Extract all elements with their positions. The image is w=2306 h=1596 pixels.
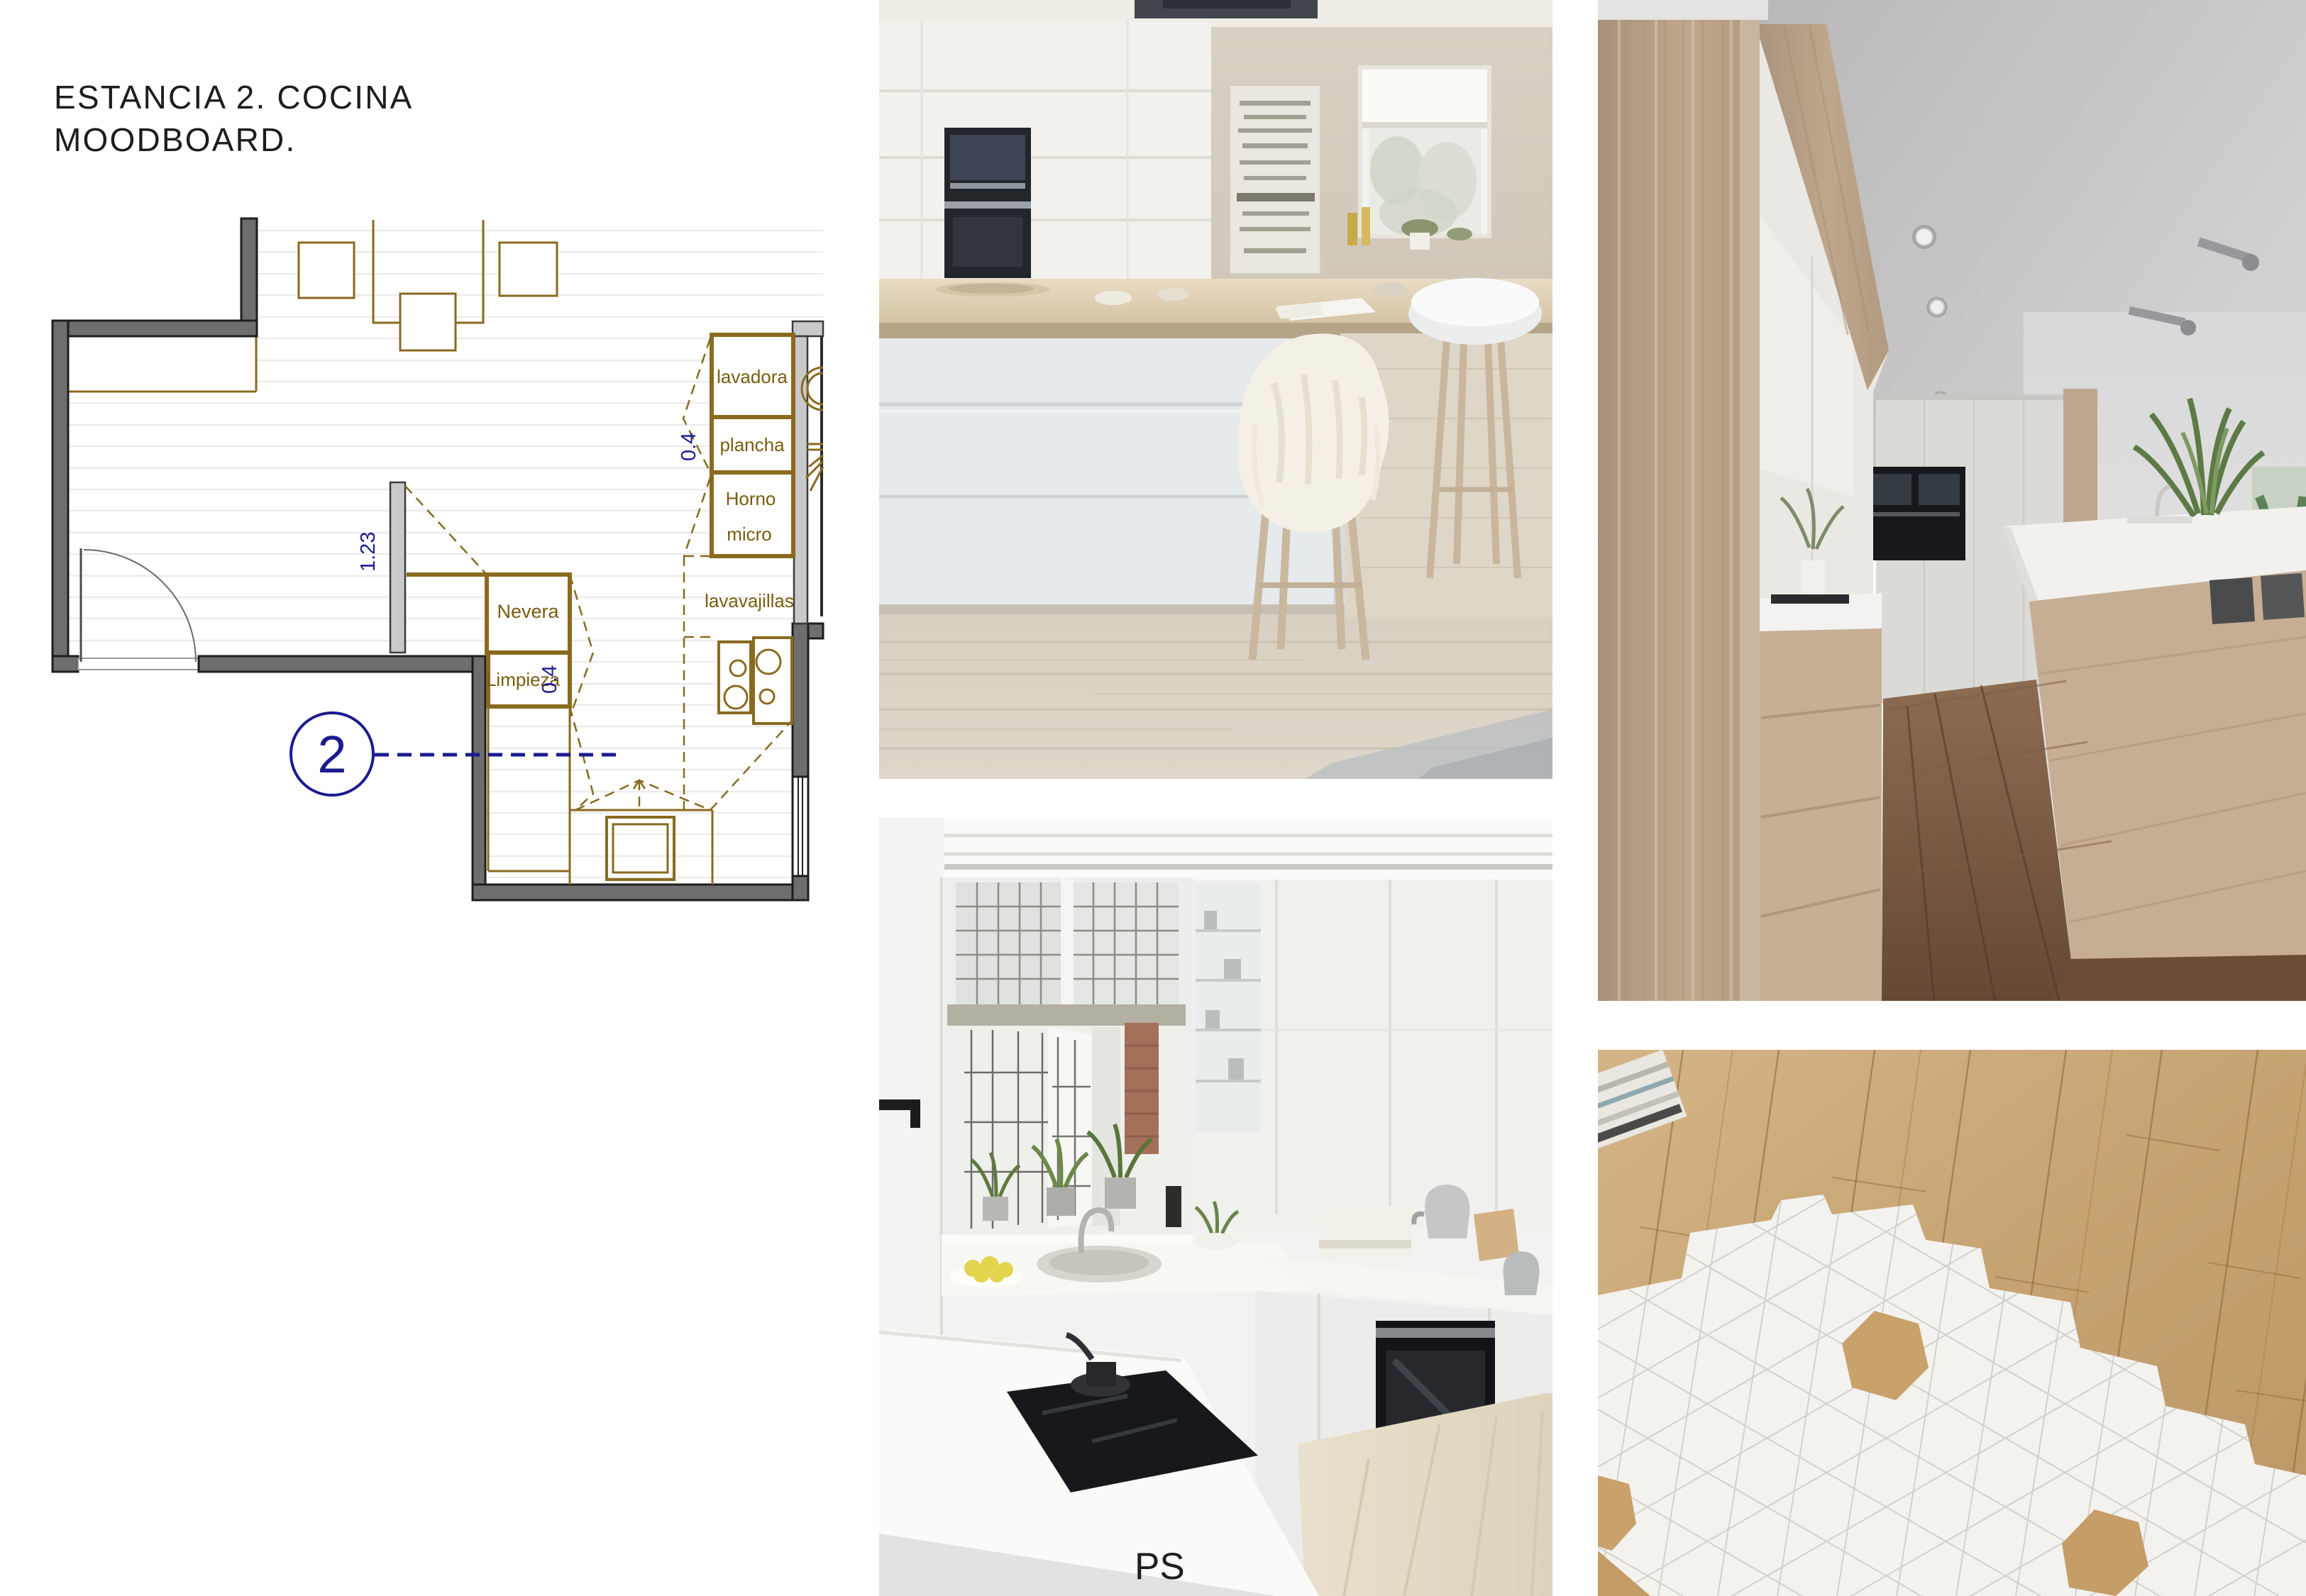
svg-text:lavavajillas: lavavajillas [705,590,794,611]
svg-text:Horno: Horno [726,488,776,509]
svg-text:micro: micro [727,523,772,545]
svg-text:Nevera: Nevera [497,601,559,622]
svg-text:1.23: 1.23 [357,532,380,572]
svg-text:0.4: 0.4 [678,433,700,461]
svg-text:lavadora: lavadora [717,366,788,387]
svg-text:plancha: plancha [719,434,785,455]
svg-text:2: 2 [317,725,346,784]
svg-text:0.4: 0.4 [539,665,561,694]
svg-text:PS: PS [1135,1546,1185,1587]
